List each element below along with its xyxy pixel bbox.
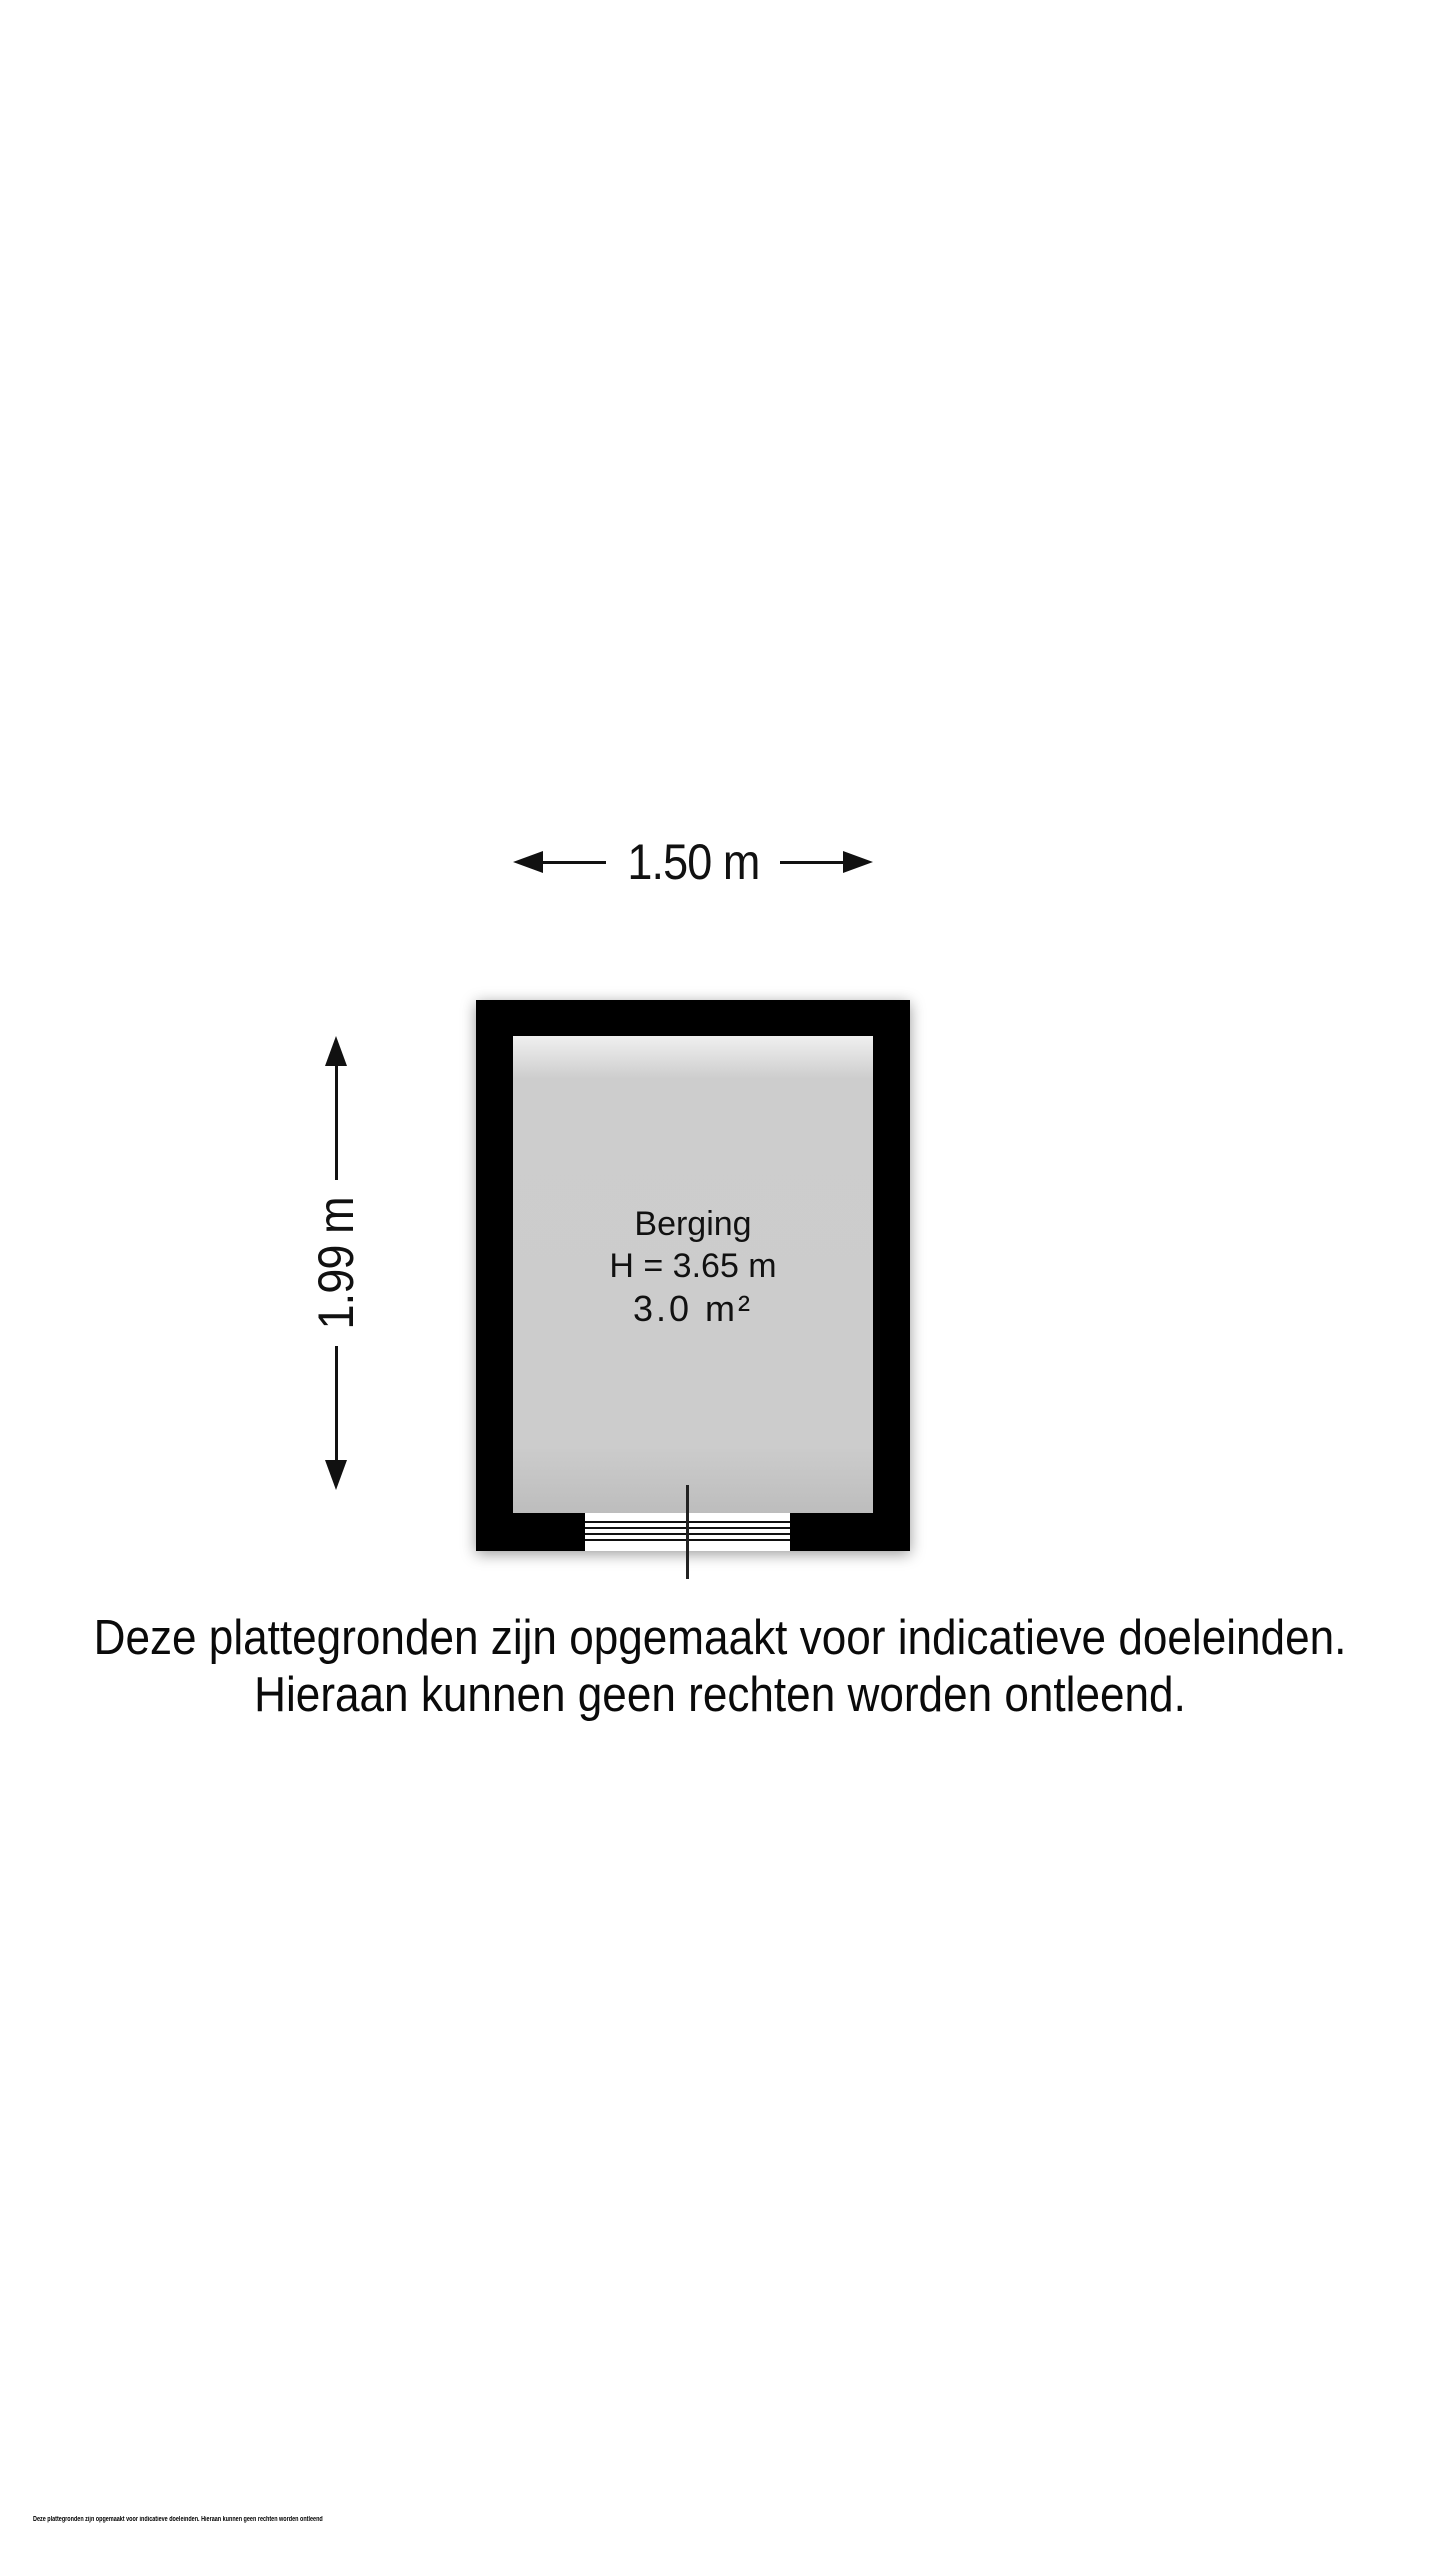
- dimension-line: [335, 1066, 338, 1180]
- arrow-up-icon: [325, 1036, 347, 1066]
- room-area: 3.0 m²: [609, 1287, 776, 1331]
- room-ceiling-height: H = 3.65 m: [609, 1245, 776, 1287]
- floorplan-page: 1.50 m 1.99 m Berging H = 3.65 m 3.0 m²: [0, 0, 1440, 2560]
- door-swing-line: [686, 1485, 689, 1579]
- height-dimension: 1.99 m: [308, 1036, 364, 1490]
- width-dimension: 1.50 m: [513, 838, 873, 886]
- height-dimension-label: 1.99 m: [307, 1188, 365, 1338]
- arrow-down-icon: [325, 1460, 347, 1490]
- room-name: Berging: [609, 1203, 776, 1245]
- footer-small-print: Deze plattegronden zijn opgemaakt voor i…: [33, 2516, 323, 2523]
- disclaimer-line-2: Hieraan kunnen geen rechten worden ontle…: [72, 1667, 1368, 1724]
- dimension-line: [335, 1346, 338, 1460]
- disclaimer-line-1: Deze plattegronden zijn opgemaakt voor i…: [72, 1610, 1368, 1667]
- width-dimension-label: 1.50 m: [614, 833, 771, 891]
- room-berging: Berging H = 3.65 m 3.0 m²: [476, 1000, 910, 1551]
- disclaimer: Deze plattegronden zijn opgemaakt voor i…: [0, 1610, 1440, 1724]
- arrow-left-icon: [513, 851, 543, 873]
- room-floor: Berging H = 3.65 m 3.0 m²: [513, 1036, 873, 1513]
- arrow-right-icon: [843, 851, 873, 873]
- dimension-line: [543, 861, 606, 864]
- dimension-line: [780, 861, 843, 864]
- room-label-block: Berging H = 3.65 m 3.0 m²: [609, 1203, 776, 1331]
